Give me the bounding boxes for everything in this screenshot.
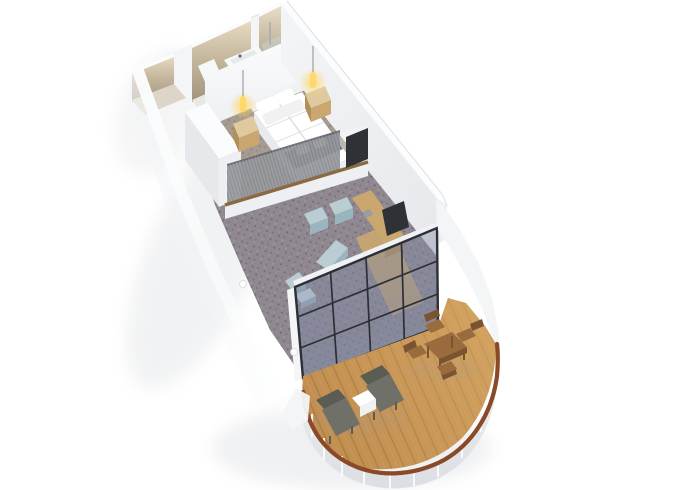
sconce-2 [291, 349, 298, 356]
suite-3d-cutaway-render [0, 0, 680, 490]
sconce-1 [240, 281, 247, 288]
pendant-lamp-right [310, 72, 316, 88]
pendant-lamp-left [240, 96, 246, 112]
bathtub-faucet [238, 54, 241, 57]
floorplan-canvas [0, 0, 680, 490]
